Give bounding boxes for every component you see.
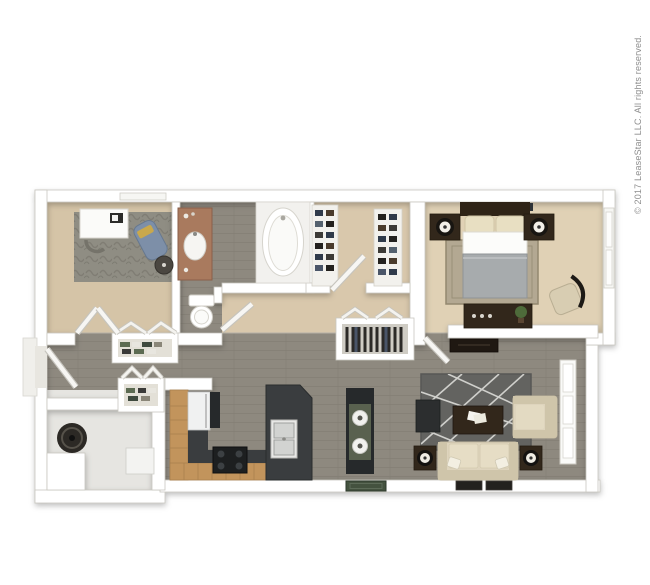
wall-right-lower bbox=[586, 345, 598, 492]
accent-chair bbox=[416, 400, 440, 432]
entry-mat bbox=[346, 481, 386, 491]
wall-nook-divider bbox=[214, 287, 222, 303]
bedroom-window bbox=[604, 208, 614, 288]
wall-utility-corner bbox=[47, 453, 85, 490]
wall-bath-south bbox=[222, 283, 314, 293]
plant bbox=[515, 306, 527, 318]
side-table-decor bbox=[162, 263, 166, 267]
armchair bbox=[513, 396, 557, 438]
sink-faucet bbox=[282, 437, 286, 441]
hall-closet bbox=[118, 368, 164, 412]
vanity-sink bbox=[184, 232, 206, 260]
vanity-item bbox=[184, 214, 189, 219]
plant-pot bbox=[518, 318, 524, 323]
floor-plan-svg bbox=[0, 0, 650, 585]
office-window bbox=[120, 193, 166, 200]
vanity-item bbox=[184, 268, 188, 272]
wall-kitchen-north bbox=[160, 378, 212, 390]
vanity-item bbox=[191, 212, 195, 216]
toilet bbox=[189, 295, 214, 328]
copyright-notice: © 2017 LeaseStar LLC. All rights reserve… bbox=[632, 8, 644, 214]
washer-unit bbox=[126, 448, 154, 474]
sofa bbox=[438, 442, 518, 480]
wall-hall-north-1 bbox=[47, 333, 75, 345]
entry-door-opening bbox=[35, 346, 47, 388]
refrigerator bbox=[188, 392, 210, 430]
cabinet-tall bbox=[210, 392, 220, 428]
headboard bbox=[460, 202, 530, 216]
pillow-right bbox=[496, 216, 525, 234]
kitchen-sink bbox=[271, 420, 297, 458]
entry-landing bbox=[23, 338, 37, 396]
vanity-faucet bbox=[193, 232, 197, 236]
pillow-left bbox=[465, 216, 494, 234]
floor-plan-image: © 2017 LeaseStar LLC. All rights reserve… bbox=[0, 0, 650, 585]
kitchen-island bbox=[346, 388, 374, 474]
floor-mat bbox=[486, 481, 512, 490]
laptop-screen bbox=[112, 215, 118, 221]
floor-mat bbox=[456, 481, 482, 490]
patio-door bbox=[560, 360, 576, 464]
stove bbox=[213, 447, 247, 473]
bathtub-basin bbox=[269, 216, 298, 271]
wall-bottom-left bbox=[35, 490, 165, 503]
tub-drain bbox=[281, 216, 286, 221]
bed-duvet bbox=[463, 254, 527, 298]
